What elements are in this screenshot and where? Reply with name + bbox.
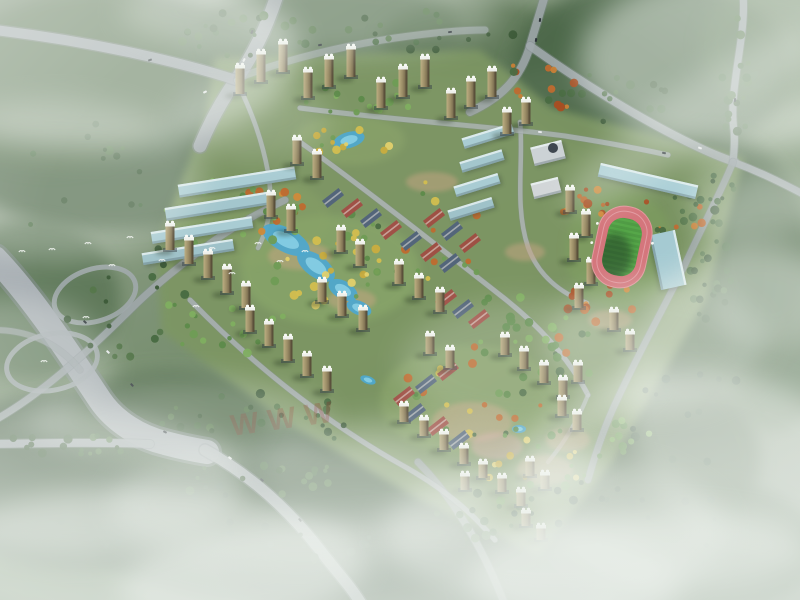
aerial-community-rendering: WWW — [0, 0, 800, 600]
aerial-rendering-stage: WWW — [0, 0, 800, 600]
bottom-haze — [0, 0, 800, 600]
